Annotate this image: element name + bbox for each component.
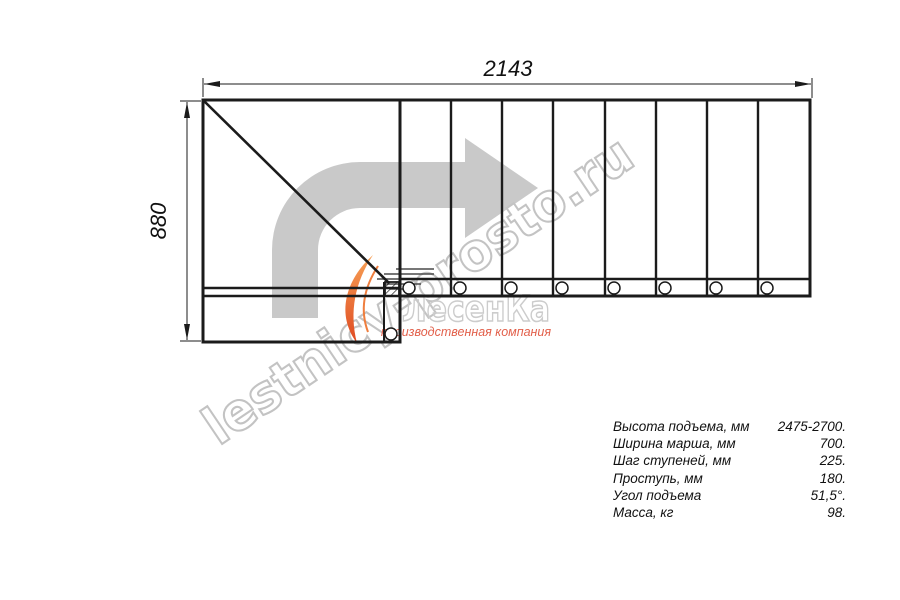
spec-label: Угол подъема [613,487,701,504]
spec-value: 2475-2700. [778,418,846,435]
spec-value: 180. [820,470,846,487]
arrowhead-right-icon [795,81,811,87]
spec-row: Высота подъема, мм 2475-2700. [613,418,846,435]
spec-row: Ширина марша, мм 700. [613,435,846,452]
spec-label: Ширина марша, мм [613,435,736,452]
dimension-left [180,101,201,341]
dimension-top [203,78,812,98]
spec-row: Масса, кг 98. [613,504,846,521]
arrowhead-up-icon [184,102,190,118]
spec-value: 51,5°. [811,487,846,504]
baluster-circle [505,282,517,294]
spec-label: Масса, кг [613,504,673,521]
spec-row: Проступь, мм 180. [613,470,846,487]
spec-value: 700. [820,435,846,452]
baluster-circle [454,282,466,294]
baluster-circle [761,282,773,294]
baluster-circle [403,282,415,294]
baluster-circle [385,328,397,340]
arrowhead-left-icon [204,81,220,87]
baluster-circle [659,282,671,294]
logo-subtitle: производственная компания [381,325,551,339]
newel-post-hatched [385,282,399,296]
arrowhead-down-icon [184,324,190,340]
dimension-top-value: 2143 [483,56,534,81]
baluster-circle [710,282,722,294]
baluster-circle [608,282,620,294]
spec-value: 225. [820,452,846,469]
spec-row: Угол подъема 51,5°. [613,487,846,504]
spec-value: 98. [827,504,846,521]
spec-label: Проступь, мм [613,470,703,487]
spec-label: Высота подъема, мм [613,418,749,435]
baluster-circle [556,282,568,294]
spec-label: Шаг ступеней, мм [613,452,731,469]
dimension-left-value: 880 [146,202,171,239]
spec-row: Шаг ступеней, мм 225. [613,452,846,469]
spec-table: Высота подъема, мм 2475-2700. Ширина мар… [613,418,846,521]
